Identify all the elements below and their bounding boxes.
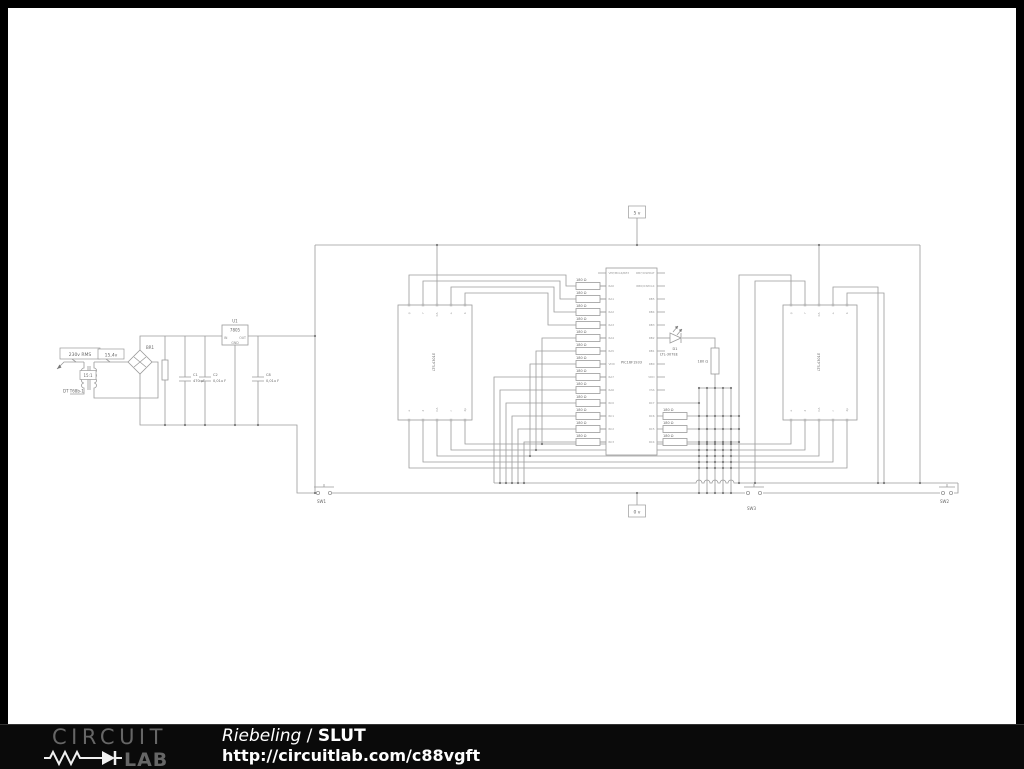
svg-text:180 Ω: 180 Ω (576, 356, 587, 360)
resistor-stack-right: 180 Ω 180 Ω 180 Ω (663, 408, 687, 446)
display-right-part: LTS-4301E (817, 353, 821, 371)
resistor[interactable]: 180 Ω (663, 408, 687, 420)
svg-text:CA: CA (435, 312, 439, 316)
svg-text:RB3: RB3 (649, 323, 655, 327)
switch-sw2[interactable]: SW2 (939, 484, 955, 504)
svg-text:180 Ω: 180 Ω (576, 317, 587, 321)
voltage-regulator-u1[interactable]: U1 7805 IN OUT GND (222, 319, 248, 426)
resistor[interactable]: 180 Ω (576, 278, 600, 290)
transformer-label: DT T68b-1 (63, 389, 84, 394)
resistor[interactable]: 180 Ω (576, 291, 600, 303)
resistor[interactable]: 180 Ω (663, 421, 687, 433)
svg-text:RB0: RB0 (649, 362, 655, 366)
resistor[interactable]: 180 Ω (663, 434, 687, 446)
svg-text:RB1: RB1 (649, 349, 655, 353)
net-flag-0v[interactable]: 0 v (629, 505, 646, 517)
u1-pin-out: OUT (239, 336, 246, 340)
resistor-stack-b: 180 Ω 180 Ω 180 Ω 180 Ω 180 Ω 180 Ω (576, 369, 600, 446)
svg-text:d: d (421, 410, 425, 412)
svg-text:RC3: RC3 (609, 440, 615, 444)
svg-text:b: b (463, 312, 467, 314)
svg-text:RB4: RB4 (649, 310, 655, 314)
svg-text:180 Ω: 180 Ω (576, 395, 587, 399)
sw3-label: SW3 (747, 506, 756, 511)
led-d1[interactable]: D1 LTL-307EE (660, 326, 682, 357)
circuit-schematic: 230v RMS 15,4v 15:1 DT T68b-1 BR1 C1 (8, 8, 1016, 725)
svg-text:RA0: RA0 (609, 284, 615, 288)
resistor[interactable]: 180 Ω (576, 382, 600, 394)
resistor[interactable]: 180 Ω (576, 356, 600, 368)
display-left-part: LTS-4301E (432, 353, 436, 371)
gnd-flag-label: 0 v (634, 510, 641, 516)
svg-text:VDD: VDD (648, 375, 654, 379)
logo-text-circuit: CIRCUIT (52, 725, 167, 749)
svg-text:RA2: RA2 (609, 310, 615, 314)
title-block: Riebeling / SLUT http://circuitlab.com/c… (222, 727, 480, 765)
svg-text:CA: CA (435, 408, 439, 412)
sw1-label: SW1 (317, 499, 326, 504)
svg-text:a: a (831, 312, 835, 314)
capacitor-c8[interactable]: C8 0,01u F (252, 336, 279, 425)
circuitlab-logo: CIRCUIT LAB (36, 725, 226, 769)
display-left[interactable]: LTS-4301E g f CA a b e d CA c dp (398, 304, 472, 422)
svg-text:CA: CA (817, 408, 821, 412)
series-resistor-vertical[interactable]: 180 Ω (698, 348, 719, 374)
svg-text:RC5: RC5 (649, 427, 655, 431)
project-title: Riebeling / SLUT (222, 727, 480, 746)
svg-text:RC6: RC6 (649, 414, 655, 418)
footer-bar: CIRCUIT LAB Riebeling / SLUT http://circ… (0, 724, 1024, 769)
svg-text:180 Ω: 180 Ω (663, 421, 674, 425)
svg-text:180 Ω: 180 Ω (576, 304, 587, 308)
svg-text:dp: dp (463, 408, 467, 412)
svg-text:RC2: RC2 (609, 427, 615, 431)
svg-text:RB5: RB5 (649, 297, 655, 301)
c8-name: C8 (266, 373, 271, 377)
svg-text:RA1: RA1 (609, 297, 615, 301)
svg-text:RA6: RA6 (609, 388, 615, 392)
resistor[interactable]: 180 Ω (576, 408, 600, 420)
svg-text:180 Ω: 180 Ω (576, 408, 587, 412)
sw2-label: SW2 (940, 499, 949, 504)
mcu-part-label: PIC16F1933 (621, 361, 642, 365)
switch-sw1[interactable]: SW1 (314, 484, 334, 504)
svg-text:VPP/MCLR/RE3: VPP/MCLR/RE3 (609, 271, 630, 275)
display-right[interactable]: LTS-4301E g f CA a b e d CA c dp (783, 304, 857, 422)
svg-text:180 Ω: 180 Ω (663, 434, 674, 438)
power-supply-section: 230v RMS 15,4v 15:1 DT T68b-1 BR1 C1 (57, 319, 279, 426)
project-name: SLUT (318, 726, 366, 746)
svg-text:RB7/ICSPDAT: RB7/ICSPDAT (636, 271, 655, 275)
svg-text:a: a (449, 312, 453, 314)
svg-text:180 Ω: 180 Ω (698, 360, 709, 364)
resistor[interactable]: 180 Ω (576, 304, 600, 316)
ac-source[interactable] (57, 362, 84, 369)
bleeder-resistor[interactable] (162, 336, 168, 425)
svg-text:RA7: RA7 (609, 375, 615, 379)
author-name: Riebeling (222, 726, 301, 746)
net-flag-230v[interactable]: 230v RMS (60, 348, 100, 362)
led-name: D1 (673, 347, 678, 351)
vcc-flag-label: 5 v (634, 211, 641, 217)
resistor[interactable]: 180 Ω (576, 343, 600, 355)
svg-text:180 Ω: 180 Ω (576, 421, 587, 425)
bridge-rectifier[interactable]: BR1 (128, 345, 155, 374)
svg-text:RB2: RB2 (649, 336, 655, 340)
resistor[interactable]: 180 Ω (576, 421, 600, 433)
svg-text:RB6/ICSPCLK: RB6/ICSPCLK (636, 284, 654, 288)
net-flag-15v[interactable]: 15,4v (98, 349, 124, 362)
svg-text:g: g (789, 312, 793, 314)
capacitor-c1[interactable]: C1 470 µF (179, 336, 205, 425)
svg-text:d: d (803, 410, 807, 412)
transformer-ratio: 15:1 (84, 373, 93, 378)
svg-text:180 Ω: 180 Ω (576, 343, 587, 347)
svg-text:RC7: RC7 (649, 401, 655, 405)
svg-text:180 Ω: 180 Ω (663, 408, 674, 412)
svg-text:CA: CA (817, 312, 821, 316)
led-part: LTL-307EE (660, 353, 678, 357)
c2-name: C2 (213, 373, 218, 377)
switch-sw3[interactable]: SW3 (744, 484, 764, 511)
u1-pin-gnd: GND (231, 341, 239, 345)
title-separator: / (301, 726, 318, 746)
svg-text:RA3: RA3 (609, 323, 615, 327)
c2-value: 0,01u F (213, 379, 226, 383)
schematic-canvas: 230v RMS 15,4v 15:1 DT T68b-1 BR1 C1 (8, 8, 1016, 725)
mcu[interactable]: PIC16F1933 VPP/MCLR/RE3 RA0 RA1 RA2 RA3 … (606, 268, 657, 455)
svg-text:RC4: RC4 (649, 440, 655, 444)
resistor[interactable]: 180 Ω (576, 434, 600, 446)
logo-text-lab: LAB (124, 749, 168, 769)
svg-text:e: e (789, 410, 793, 412)
svg-text:g: g (407, 312, 411, 314)
svg-text:dp: dp (845, 408, 849, 412)
resistor[interactable]: 180 Ω (576, 330, 600, 342)
svg-text:RA5: RA5 (609, 349, 615, 353)
svg-text:RC0: RC0 (609, 401, 615, 405)
svg-text:180 Ω: 180 Ω (576, 369, 587, 373)
svg-text:RC1: RC1 (609, 414, 615, 418)
logo-resistor-diode-icon (44, 751, 122, 765)
u1-name: U1 (232, 319, 238, 324)
c8-value: 0,01u F (266, 379, 279, 383)
net-flag-5v[interactable]: 5 v (629, 206, 646, 218)
ac-flag-label: 230v RMS (69, 352, 92, 358)
svg-text:VSS: VSS (649, 388, 655, 392)
u1-value: 7805 (230, 328, 241, 333)
circuit-url[interactable]: http://circuitlab.com/c88vgft (222, 746, 480, 765)
sec-flag-label: 15,4v (105, 353, 118, 359)
c1-name: C1 (193, 373, 198, 377)
svg-text:b: b (845, 312, 849, 314)
svg-text:180 Ω: 180 Ω (576, 278, 587, 282)
resistor[interactable]: 180 Ω (576, 369, 600, 381)
resistor[interactable]: 180 Ω (576, 395, 600, 407)
svg-text:e: e (407, 410, 411, 412)
bridge-label: BR1 (146, 345, 155, 350)
resistor-stack-a: 180 Ω 180 Ω 180 Ω 180 Ω 180 Ω 180 Ω 180 … (576, 278, 600, 368)
resistor[interactable]: 180 Ω (576, 317, 600, 329)
svg-text:180 Ω: 180 Ω (576, 434, 587, 438)
svg-text:180 Ω: 180 Ω (576, 330, 587, 334)
svg-text:VDD: VDD (609, 362, 615, 366)
svg-text:180 Ω: 180 Ω (576, 382, 587, 386)
svg-text:180 Ω: 180 Ω (576, 291, 587, 295)
svg-text:RA4: RA4 (609, 336, 615, 340)
